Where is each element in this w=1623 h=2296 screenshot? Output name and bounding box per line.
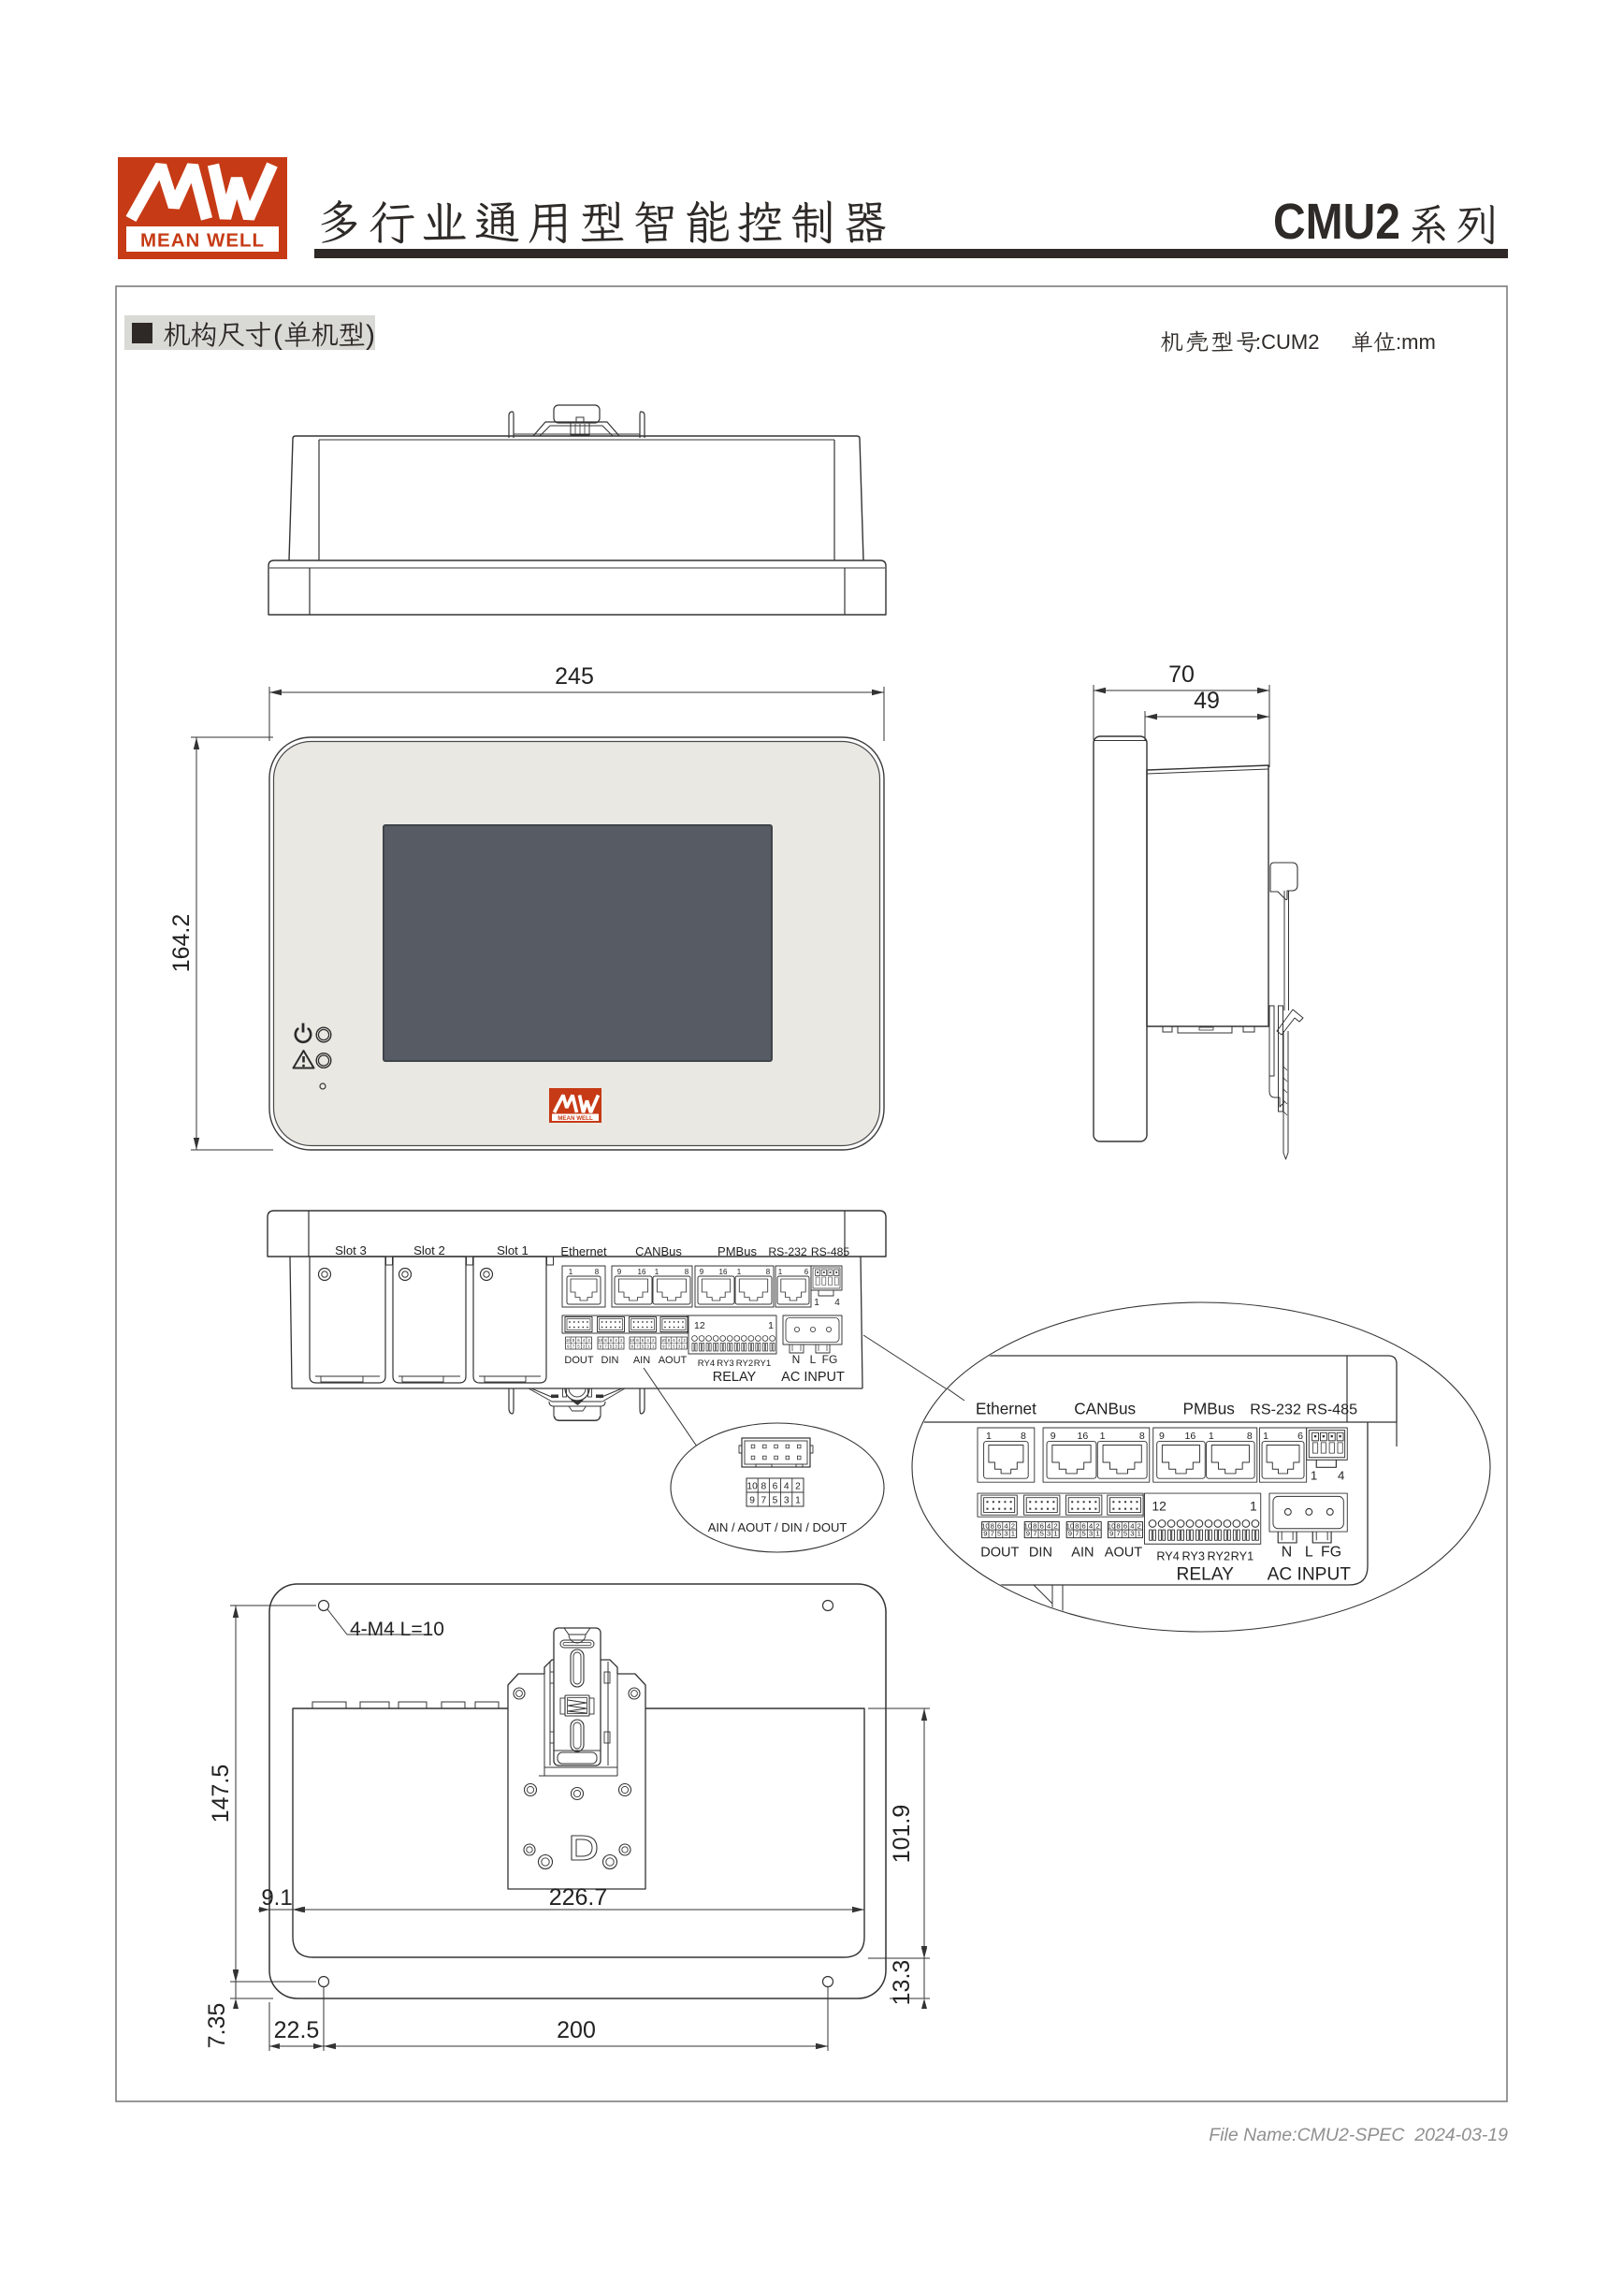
svg-text:200: 200: [557, 2017, 596, 2043]
svg-text:RY4: RY4: [1156, 1549, 1179, 1562]
svg-text:1: 1: [814, 1298, 819, 1308]
svg-text:PMBus: PMBus: [717, 1244, 757, 1258]
svg-text:1: 1: [768, 1320, 774, 1331]
svg-text:1: 1: [1053, 1530, 1057, 1538]
svg-text:1: 1: [795, 1496, 801, 1506]
svg-text:7.35: 7.35: [204, 2003, 230, 2049]
svg-text:RELAY: RELAY: [1177, 1565, 1235, 1585]
svg-text:9: 9: [1026, 1530, 1030, 1538]
svg-text:8: 8: [1247, 1431, 1253, 1442]
svg-text:8: 8: [572, 1338, 575, 1343]
svg-text:9: 9: [1051, 1431, 1056, 1442]
svg-text:8: 8: [1021, 1431, 1026, 1442]
svg-text:RY4: RY4: [698, 1359, 716, 1369]
svg-text:9.1: 9.1: [261, 1885, 292, 1911]
svg-text:7: 7: [1033, 1530, 1036, 1538]
svg-text:10: 10: [598, 1338, 602, 1343]
svg-text:7: 7: [761, 1496, 766, 1506]
svg-text:AC INPUT: AC INPUT: [1268, 1565, 1352, 1585]
svg-text:Ethernet: Ethernet: [560, 1244, 607, 1258]
svg-text:5: 5: [1123, 1530, 1127, 1538]
svg-text:9: 9: [983, 1530, 987, 1538]
svg-text:4: 4: [834, 1298, 840, 1308]
svg-text:1: 1: [652, 1344, 655, 1349]
svg-text:3: 3: [1130, 1530, 1134, 1538]
svg-text:16: 16: [1077, 1431, 1088, 1442]
svg-text:6: 6: [610, 1338, 613, 1343]
svg-text:RELAY: RELAY: [713, 1370, 757, 1385]
svg-text:13.3: 13.3: [889, 1960, 915, 2006]
svg-text:RY1: RY1: [754, 1359, 772, 1369]
svg-text:7: 7: [1116, 1530, 1120, 1538]
svg-text:1: 1: [1263, 1431, 1268, 1442]
svg-text:8: 8: [636, 1338, 639, 1343]
svg-text:2: 2: [652, 1338, 655, 1343]
svg-text:AIN / AOUT / DIN / DOUT: AIN / AOUT / DIN / DOUT: [708, 1520, 848, 1534]
svg-text:2: 2: [795, 1482, 801, 1492]
svg-text:4: 4: [615, 1338, 617, 1343]
svg-text:3: 3: [784, 1496, 790, 1506]
svg-text:5: 5: [1082, 1530, 1086, 1538]
svg-text:CMU2: CMU2: [1273, 194, 1400, 250]
svg-text:FG: FG: [822, 1353, 838, 1366]
svg-text:DIN: DIN: [1029, 1545, 1052, 1560]
svg-text:6: 6: [642, 1338, 645, 1343]
svg-text:6: 6: [804, 1268, 809, 1276]
svg-text:147.5: 147.5: [208, 1765, 234, 1824]
svg-text:9: 9: [749, 1496, 755, 1506]
svg-text:6: 6: [1297, 1431, 1303, 1442]
svg-text:AIN: AIN: [633, 1355, 650, 1366]
svg-text:1: 1: [1311, 1469, 1317, 1483]
svg-text:6: 6: [773, 1482, 778, 1492]
svg-text:RS-485: RS-485: [811, 1245, 850, 1258]
svg-text:5: 5: [642, 1344, 645, 1349]
svg-text:1: 1: [569, 1268, 573, 1276]
svg-text:10: 10: [746, 1482, 758, 1492]
svg-text:CANBus: CANBus: [1074, 1399, 1136, 1417]
svg-text:9: 9: [662, 1344, 665, 1349]
svg-text:AC INPUT: AC INPUT: [781, 1370, 845, 1385]
svg-text:1: 1: [1011, 1530, 1015, 1538]
svg-text:5: 5: [997, 1530, 1001, 1538]
svg-text:7: 7: [636, 1344, 639, 1349]
svg-text:9: 9: [1159, 1431, 1165, 1442]
svg-text:4: 4: [583, 1338, 586, 1343]
svg-text:8: 8: [685, 1268, 689, 1276]
svg-text:1: 1: [1100, 1431, 1106, 1442]
svg-text:3: 3: [1047, 1530, 1051, 1538]
svg-text:1: 1: [737, 1268, 742, 1276]
svg-text:4: 4: [784, 1482, 790, 1492]
svg-text:16: 16: [638, 1268, 646, 1276]
svg-text:4: 4: [678, 1338, 681, 1343]
svg-text:12: 12: [694, 1320, 705, 1331]
svg-text:RY3: RY3: [1181, 1549, 1204, 1562]
svg-text:70: 70: [1168, 661, 1195, 688]
svg-text:10: 10: [566, 1338, 571, 1343]
svg-text:RS-232: RS-232: [1250, 1401, 1301, 1417]
svg-text:3: 3: [1089, 1530, 1093, 1538]
svg-text:L: L: [1305, 1544, 1313, 1560]
svg-text:Slot 2: Slot 2: [413, 1243, 445, 1257]
svg-text:9: 9: [600, 1344, 602, 1349]
svg-text:3: 3: [646, 1344, 649, 1349]
svg-text:10: 10: [661, 1338, 666, 1343]
svg-text:AOUT: AOUT: [1105, 1545, 1142, 1560]
svg-text:6: 6: [673, 1338, 675, 1343]
svg-text:8: 8: [766, 1268, 771, 1276]
svg-text:DIN: DIN: [601, 1355, 619, 1366]
svg-text:RY1: RY1: [1231, 1549, 1253, 1562]
svg-text:9: 9: [617, 1268, 622, 1276]
svg-text:File Name:CMU2-SPEC 2024-03-1: File Name:CMU2-SPEC 2024-03-19: [1209, 2125, 1508, 2145]
svg-text:245: 245: [555, 663, 594, 690]
svg-text:5: 5: [1040, 1530, 1044, 1538]
svg-text:9: 9: [1068, 1530, 1072, 1538]
svg-text:49: 49: [1194, 688, 1220, 714]
svg-text:8: 8: [761, 1482, 766, 1492]
svg-text:7: 7: [1075, 1530, 1079, 1538]
svg-text:(: (: [273, 320, 283, 351]
svg-text:7: 7: [572, 1344, 575, 1349]
svg-text:12: 12: [1152, 1499, 1167, 1514]
svg-text:CANBus: CANBus: [635, 1244, 682, 1258]
svg-text:8: 8: [604, 1338, 607, 1343]
svg-text:): ): [366, 320, 375, 351]
svg-text::mm: :mm: [1396, 330, 1436, 354]
svg-text:3: 3: [615, 1344, 617, 1349]
svg-text:164.2: 164.2: [168, 914, 195, 973]
svg-text:Slot 3: Slot 3: [335, 1243, 367, 1257]
svg-text:4: 4: [646, 1338, 649, 1343]
svg-text:1: 1: [778, 1268, 783, 1276]
svg-text:1: 1: [1138, 1530, 1141, 1538]
svg-text:L: L: [810, 1353, 817, 1366]
svg-text:8: 8: [595, 1268, 600, 1276]
svg-text:RS-232: RS-232: [768, 1245, 807, 1258]
svg-text:10: 10: [630, 1338, 634, 1343]
svg-text:1: 1: [1250, 1499, 1257, 1514]
svg-text:Ethernet: Ethernet: [976, 1399, 1036, 1417]
svg-text:5: 5: [577, 1344, 580, 1349]
svg-text:8: 8: [1139, 1431, 1145, 1442]
svg-text:9: 9: [567, 1344, 570, 1349]
svg-text:5: 5: [773, 1496, 778, 1506]
svg-text:1: 1: [684, 1344, 687, 1349]
svg-text:RS-485: RS-485: [1306, 1401, 1357, 1417]
svg-text:2: 2: [684, 1338, 687, 1343]
svg-text:1: 1: [655, 1268, 659, 1276]
svg-text:1: 1: [1095, 1530, 1099, 1538]
svg-text:AOUT: AOUT: [659, 1355, 688, 1366]
svg-text:16: 16: [1185, 1431, 1196, 1442]
svg-text:2: 2: [620, 1338, 623, 1343]
svg-text:1: 1: [588, 1344, 591, 1349]
svg-text:22.5: 22.5: [274, 2017, 320, 2043]
svg-text:5: 5: [610, 1344, 613, 1349]
svg-text:7: 7: [668, 1344, 671, 1349]
svg-text:FG: FG: [1321, 1544, 1341, 1560]
svg-text:9: 9: [700, 1268, 704, 1276]
svg-text:4: 4: [1338, 1469, 1344, 1483]
svg-text:AIN: AIN: [1071, 1545, 1094, 1560]
svg-text:Slot 1: Slot 1: [497, 1243, 529, 1257]
svg-text:N: N: [792, 1353, 801, 1366]
svg-text:7: 7: [991, 1530, 994, 1538]
svg-text:3: 3: [678, 1344, 681, 1349]
svg-text:N: N: [1282, 1544, 1292, 1560]
svg-text:DOUT: DOUT: [980, 1545, 1019, 1560]
svg-text::CUM2: :CUM2: [1255, 330, 1319, 354]
svg-text:9: 9: [631, 1344, 634, 1349]
svg-text:16: 16: [719, 1268, 728, 1276]
svg-text:2: 2: [588, 1338, 591, 1343]
svg-text:DOUT: DOUT: [564, 1355, 593, 1366]
svg-text:101.9: 101.9: [889, 1805, 915, 1864]
svg-text:9: 9: [1109, 1530, 1113, 1538]
svg-text:1: 1: [986, 1431, 992, 1442]
svg-text:3: 3: [583, 1344, 586, 1349]
svg-text:1: 1: [1209, 1431, 1214, 1442]
svg-text:PMBus: PMBus: [1183, 1399, 1235, 1417]
svg-text:4-M4 L=10: 4-M4 L=10: [350, 1619, 444, 1640]
svg-text:MEAN WELL: MEAN WELL: [558, 1115, 593, 1122]
svg-text:6: 6: [577, 1338, 580, 1343]
svg-text:226.7: 226.7: [549, 1884, 608, 1911]
svg-text:7: 7: [604, 1344, 607, 1349]
svg-text:MEAN WELL: MEAN WELL: [140, 230, 265, 252]
svg-text:8: 8: [668, 1338, 671, 1343]
svg-text:RY2: RY2: [736, 1359, 754, 1369]
svg-text:3: 3: [1004, 1530, 1007, 1538]
svg-text:RY3: RY3: [717, 1359, 734, 1369]
svg-text:5: 5: [673, 1344, 675, 1349]
svg-text:RY2: RY2: [1208, 1549, 1230, 1562]
svg-text:1: 1: [620, 1344, 623, 1349]
